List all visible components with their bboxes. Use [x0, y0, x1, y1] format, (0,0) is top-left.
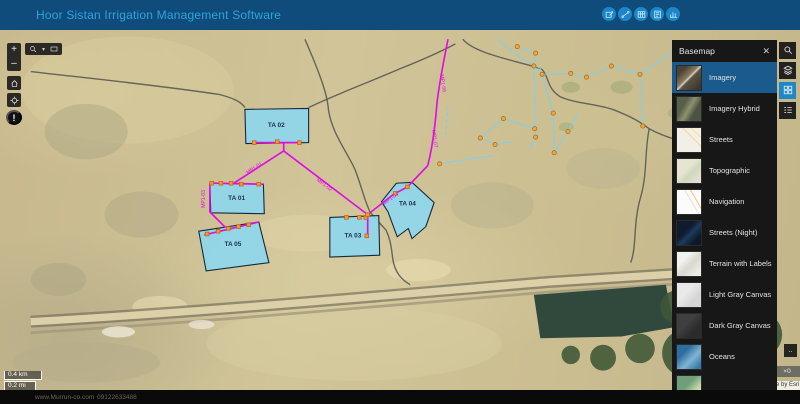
scalebar-mi: 0.2 mi [4, 381, 36, 390]
basemap-item-label: Streets (Night) [709, 228, 757, 237]
zoom-out-button[interactable]: – [7, 57, 21, 71]
channel-node[interactable] [609, 64, 613, 68]
scalebar-km: 0.4 km [4, 371, 42, 380]
app-header: Hoor Sistan Irrigation Management Softwa… [0, 0, 800, 30]
chart-tool-button[interactable] [666, 7, 680, 21]
channel-node[interactable] [638, 72, 642, 76]
outlet-marker[interactable] [275, 140, 279, 144]
basemap-item-light-gray-canvas[interactable]: Light Gray Canvas [672, 279, 777, 310]
layers-tool-button[interactable] [779, 62, 796, 79]
edit-tool-button[interactable] [602, 7, 616, 21]
search-widget[interactable]: ▾ [25, 43, 62, 55]
basemap-item-label: Light Gray Canvas [709, 290, 771, 299]
outlet-marker[interactable] [237, 225, 241, 229]
channel-node[interactable] [533, 127, 537, 131]
channel-node[interactable] [534, 135, 538, 139]
basemap-item-label: Navigation [709, 197, 744, 206]
footer-phone: 09122633488 [97, 394, 137, 401]
esri-attribution: e by Esri [776, 381, 800, 390]
channel-node[interactable] [584, 75, 588, 79]
basemap-thumbnail [676, 282, 702, 308]
header-toolbar [602, 7, 680, 21]
channel-node[interactable] [569, 71, 573, 75]
table-tool-button[interactable] [634, 7, 648, 21]
home-button[interactable] [7, 76, 21, 90]
scalebar: 0.4 km 0.2 mi [4, 371, 42, 391]
boundary-line [631, 129, 649, 263]
basemap-item-label: Topographic [709, 166, 750, 175]
footer-bar: www.Murrun-co.com 09122633488 [0, 390, 800, 404]
basemap-item-label: Imagery Hybrid [709, 104, 760, 113]
basemap-panel-title: Basemap [679, 46, 715, 56]
outlet-marker[interactable] [219, 181, 223, 185]
search-tool-button[interactable] [779, 42, 796, 59]
basemap-thumbnail [676, 65, 702, 91]
channel-node[interactable] [478, 136, 482, 140]
outlet-marker[interactable] [365, 234, 369, 238]
outlet-marker[interactable] [257, 182, 261, 186]
outlet-marker[interactable] [358, 216, 362, 220]
basemap-thumbnail [676, 127, 702, 153]
basemap-panel-header: Basemap ✕ [672, 40, 777, 62]
table-icon [637, 7, 646, 22]
channel-node[interactable] [566, 129, 570, 133]
zone-label: TA 02 [268, 122, 285, 129]
outlet-marker[interactable] [298, 141, 302, 145]
pipeline-label: MP1-06 [438, 74, 446, 93]
basemap-thumbnail [676, 251, 702, 277]
basemap-thumbnail [676, 220, 702, 246]
basemap-panel: Basemap ✕ ImageryImagery HybridStreetsTo… [672, 40, 777, 390]
map-badge: ×0 [774, 366, 800, 377]
channel-line [554, 115, 577, 153]
outlet-marker[interactable] [345, 216, 349, 220]
channel-node[interactable] [540, 72, 544, 76]
basemap-thumbnail [676, 96, 702, 122]
basemap-thumbnail [676, 313, 702, 339]
zone-label: TA 04 [399, 200, 416, 207]
channel-node[interactable] [641, 124, 645, 128]
channel-node[interactable] [438, 162, 442, 166]
basemap-item-label: Terrain with Labels [709, 259, 772, 268]
outlet-marker[interactable] [210, 181, 214, 185]
outlet-marker[interactable] [205, 232, 209, 236]
basemap-item-partial[interactable] [672, 372, 777, 390]
zoom-control: + – [7, 43, 21, 71]
basemap-item-label: Streets [709, 135, 733, 144]
attribution-expand-button[interactable]: .. [784, 344, 797, 357]
channel-line [440, 156, 493, 164]
basemap-item-label: Dark Gray Canvas [709, 321, 771, 330]
basemap-item-imagery-hybrid[interactable]: Imagery Hybrid [672, 93, 777, 124]
channel-node[interactable] [515, 44, 519, 48]
basemap-grid-icon [783, 83, 793, 98]
zone-label: TA 01 [228, 195, 245, 202]
basemap-item-topographic[interactable]: Topographic [672, 155, 777, 186]
edit-map-icon [605, 7, 614, 22]
search-icon [29, 40, 37, 58]
channel-line [503, 119, 534, 129]
basemap-thumbnail [676, 375, 702, 391]
layers-icon [783, 63, 793, 78]
zone-label: TA 03 [344, 233, 361, 240]
channel-node[interactable] [552, 151, 556, 155]
basemap-item-label: Oceans [709, 352, 735, 361]
basemap-list: ImageryImagery HybridStreetsTopographicN… [672, 62, 777, 390]
basemap-thumbnail [676, 189, 702, 215]
channel-line [480, 119, 512, 145]
channel-node[interactable] [501, 116, 505, 120]
measure-icon [621, 7, 630, 22]
locate-button[interactable] [7, 93, 21, 107]
channel-node[interactable] [551, 111, 555, 115]
legend-tool-button[interactable] [779, 102, 796, 119]
report-tool-button[interactable] [650, 7, 664, 21]
outlet-marker[interactable] [366, 213, 370, 217]
basemap-item-streets-night-[interactable]: Streets (Night) [672, 217, 777, 248]
close-icon[interactable]: ✕ [762, 46, 770, 57]
chevron-down-icon[interactable]: ▾ [42, 46, 45, 53]
boundary-line [309, 44, 456, 108]
basemap-gallery-button[interactable] [779, 82, 796, 99]
outlet-marker[interactable] [226, 227, 230, 231]
dashed-channel-line [445, 106, 448, 139]
basemap-item-oceans[interactable]: Oceans [672, 341, 777, 372]
zone-polygon[interactable] [382, 182, 435, 238]
basemap-item-navigation[interactable]: Navigation [672, 186, 777, 217]
basemap-item-streets[interactable]: Streets [672, 124, 777, 155]
basemap-item-dark-gray-canvas[interactable]: Dark Gray Canvas [672, 310, 777, 341]
report-icon [653, 7, 662, 22]
outlet-marker[interactable] [216, 229, 220, 233]
outlet-marker[interactable] [406, 185, 410, 189]
tracking-button[interactable]: ! [6, 110, 22, 125]
basemap-thumbnail [676, 158, 702, 184]
home-icon [10, 76, 19, 91]
basemap-item-label: Imagery [709, 73, 736, 82]
basemap-thumbnail [676, 344, 702, 370]
outlet-marker[interactable] [229, 181, 233, 185]
pipeline-label: MP1-01 [245, 161, 263, 176]
channel-node[interactable] [493, 142, 497, 146]
channel-node[interactable] [532, 64, 536, 68]
outlet-marker[interactable] [239, 182, 243, 186]
pipeline-label: MP1-03 [201, 190, 207, 208]
zone-label: TA 05 [224, 241, 241, 248]
footer-website: www.Murrun-co.com [35, 394, 94, 401]
legend-icon [783, 103, 793, 118]
outlet-marker[interactable] [247, 223, 251, 227]
app-title: Hoor Sistan Irrigation Management Softwa… [36, 8, 281, 22]
search-input-box-icon [50, 40, 58, 58]
outlet-marker[interactable] [252, 141, 256, 145]
zoom-in-button[interactable]: + [7, 43, 21, 57]
bar-chart-icon [669, 7, 678, 22]
locate-icon [10, 93, 19, 108]
pipeline-label: MP1-02 [315, 177, 333, 193]
map-tools-toolbar [779, 42, 796, 119]
basemap-item-terrain-with-labels[interactable]: Terrain with Labels [672, 248, 777, 279]
search-icon [783, 43, 793, 58]
channel-node[interactable] [534, 51, 538, 55]
basemap-item-imagery[interactable]: Imagery [672, 62, 777, 93]
measure-tool-button[interactable] [618, 7, 632, 21]
